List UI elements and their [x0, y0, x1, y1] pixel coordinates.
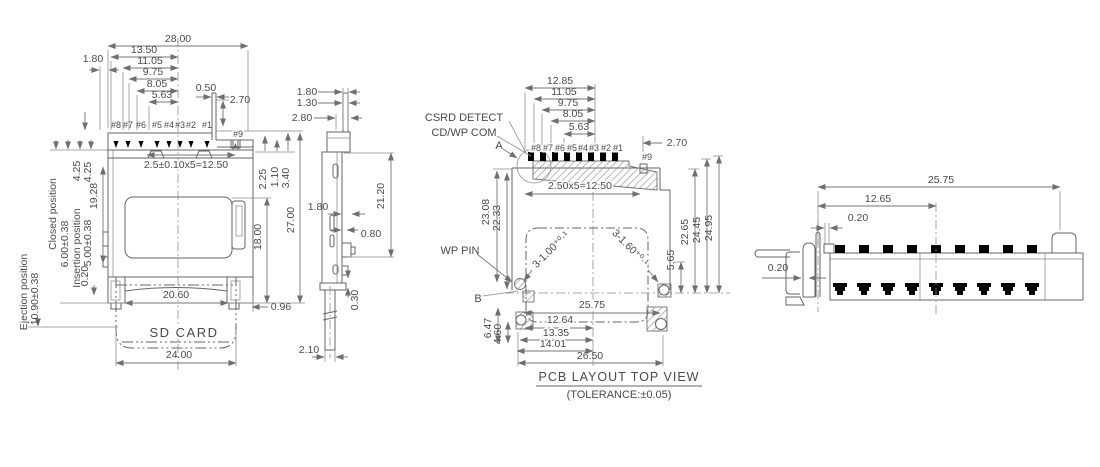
technical-drawing: 28.00 13.50 11.05 9.75 8.05 5.63 0.50 2.… [0, 0, 1100, 467]
side-dim-1-80-mid: 1.80 [308, 201, 329, 213]
front-pin-label-2: #2 [186, 120, 196, 130]
front-dim-2-25: 2.25 [257, 169, 269, 190]
side-view-outline [320, 93, 355, 358]
front-dim-0-96: 0.96 [271, 301, 292, 313]
side-dimension-lines [312, 88, 394, 362]
right-dim-25-75: 25.75 [928, 174, 954, 186]
pcb-pin-label-9: #9 [642, 152, 652, 162]
side-dim-0-80: 0.80 [361, 228, 382, 240]
pcb-label-csrd-detect: CSRD DETECT [425, 112, 504, 124]
front-pin-label-8: #8 [111, 120, 121, 130]
pcb-dim-5-65: 5.65 [665, 250, 677, 271]
pcb-dim-14-01: 14.01 [540, 338, 566, 350]
pcb-dim-22-33: 22.33 [491, 205, 503, 231]
front-dim-5-63: 5.63 [152, 89, 173, 101]
side-view: 1.80 1.30 2.80 21.20 1.80 0.80 0.30 2.10 [292, 86, 394, 362]
front-dim-0-50: 0.50 [196, 82, 217, 94]
side-dim-21-20: 21.20 [375, 183, 387, 209]
front-closed-label: Closed position [47, 178, 59, 250]
pcb-dim-12-64: 12.64 [547, 314, 573, 326]
pcb-hole-note-left: 3-1.00⁺⁰·¹ [530, 229, 572, 271]
front-dim-0-20: 0.20 [79, 266, 91, 287]
right-view: 25.75 12.65 0.20 0.20 [755, 174, 1083, 315]
front-insertion-value: 5.00±0.38 [82, 220, 94, 267]
pcb-caption-tolerance: (TOLERANCE:±0.05) [567, 389, 672, 401]
pcb-dim-26-50: 26.50 [577, 350, 603, 362]
front-pin-label-9: #9 [233, 129, 243, 139]
side-dim-2-80: 2.80 [292, 112, 313, 124]
pcb-dim-24-95: 24.95 [703, 215, 715, 241]
front-dim-1-80: 1.80 [83, 53, 104, 65]
front-pin-label-1: #1 [202, 120, 212, 130]
pcb-pin-label-2: #2 [601, 143, 611, 153]
front-pin-label-3: #3 [175, 120, 185, 130]
front-dim-24-00: 24.00 [166, 349, 192, 361]
pcb-outline [505, 149, 730, 340]
front-dim-19-28: 19.28 [88, 183, 100, 209]
pcb-dim-2-70: 2.70 [667, 137, 688, 149]
pcb-pin-label-1: #1 [613, 143, 623, 153]
side-dim-1-30: 1.30 [297, 97, 318, 109]
front-dim-2-70: 2.70 [230, 94, 251, 106]
right-dimension-lines [762, 187, 1060, 278]
front-pin-label-5: #5 [152, 120, 162, 130]
pcb-label-a: A [495, 140, 503, 152]
pcb-caption-title: PCB LAYOUT TOP VIEW [539, 370, 700, 384]
front-dim-20-60: 20.60 [163, 289, 189, 301]
front-closed-value: 6.00±0.38 [59, 221, 71, 268]
front-dim-4-25-b: 4.25 [82, 162, 94, 183]
pcb-view: 12.85 11.05 9.75 8.05 5.63 2.70 CSRD DET… [425, 75, 730, 401]
front-pin-label-4: #4 [164, 120, 174, 130]
pcb-dim-22-65: 22.65 [679, 219, 691, 245]
front-dim-28-00: 28.00 [165, 33, 191, 45]
pcb-pin-label-6: #6 [555, 143, 565, 153]
front-dim-3-40: 3.40 [280, 168, 292, 189]
pcb-dim-8-05: 8.05 [563, 108, 584, 120]
front-dim-18-00: 18.00 [252, 224, 264, 250]
pcb-dim-5-63: 5.63 [569, 121, 590, 133]
side-dim-2-10: 2.10 [299, 344, 320, 356]
pcb-dim-4-60: 4.60 [492, 324, 504, 345]
right-pin-contacts [833, 245, 1039, 295]
front-view: 28.00 13.50 11.05 9.75 8.05 5.63 0.50 2.… [18, 33, 305, 372]
right-dim-0-20-left: 0.20 [768, 262, 789, 274]
front-ejection-value: 10.90±0.38 [29, 273, 41, 326]
front-pin-label-7: #7 [123, 120, 133, 130]
pcb-dim-25-75: 25.75 [579, 299, 605, 311]
pcb-pin-label-5: #5 [567, 143, 577, 153]
pcb-pitch-note: 2.50x5=12.50 [548, 180, 612, 192]
pcb-label-b: B [474, 293, 481, 305]
pcb-label-wp-pin: WP PIN [441, 245, 480, 257]
side-dim-0-30: 0.30 [349, 290, 361, 311]
pcb-caption: PCB LAYOUT TOP VIEW (TOLERANCE:±0.05) [536, 370, 702, 401]
right-dim-0-20-top: 0.20 [848, 212, 869, 224]
front-pin-label-6: #6 [136, 120, 146, 130]
pcb-pin-label-3: #3 [589, 143, 599, 153]
drawing-sheet: 28.00 13.50 11.05 9.75 8.05 5.63 0.50 2.… [0, 0, 1100, 467]
right-dim-12-65: 12.65 [865, 193, 891, 205]
pcb-dim-24-45: 24.45 [691, 217, 703, 243]
pcb-pin-label-8: #8 [531, 143, 541, 153]
front-card-label: SD CARD [149, 325, 218, 340]
front-pitch-note: 2.5±0.10x5=12.50 [144, 159, 228, 171]
pcb-pin-label-7: #7 [543, 143, 553, 153]
pcb-label-cd-wp-com: CD/WP COM [431, 127, 496, 139]
right-view-outline [755, 222, 1083, 312]
pcb-pin-label-4: #4 [578, 143, 588, 153]
front-dim-9-75: 9.75 [143, 66, 164, 78]
front-dim-27-00: 27.00 [285, 207, 297, 233]
pcb-hole-note-right: 3-1.60⁺⁰·¹ [609, 227, 651, 269]
